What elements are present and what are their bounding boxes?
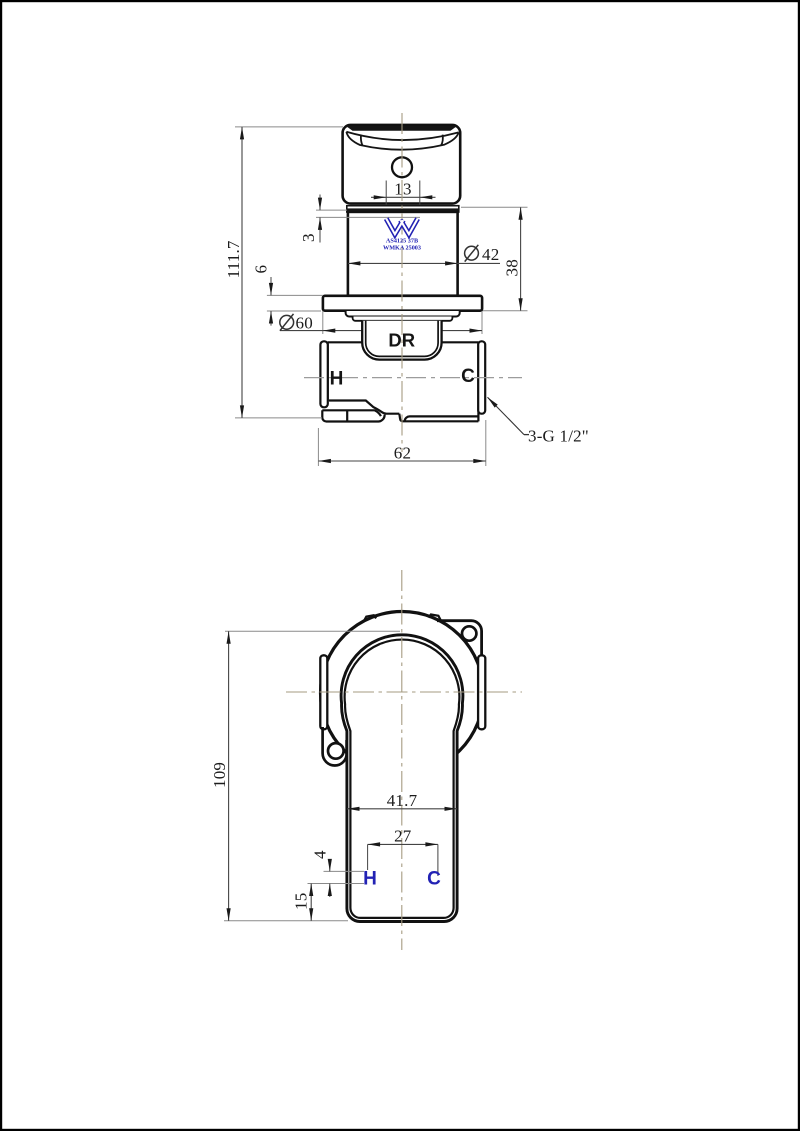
- svg-text:4: 4: [311, 850, 330, 859]
- svg-text:15: 15: [292, 893, 311, 910]
- svg-text:13: 13: [394, 179, 411, 198]
- svg-text:41.7: 41.7: [387, 791, 418, 810]
- svg-text:109: 109: [210, 762, 229, 788]
- svg-text:AS4125 37B: AS4125 37B: [386, 237, 418, 244]
- svg-text:H: H: [330, 369, 344, 390]
- svg-text:111.7: 111.7: [224, 240, 243, 278]
- svg-text:62: 62: [394, 444, 411, 463]
- svg-text:38: 38: [503, 259, 522, 276]
- svg-text:C: C: [461, 366, 475, 387]
- svg-text:H: H: [363, 868, 377, 889]
- svg-text:WMKA 25003: WMKA 25003: [383, 245, 421, 252]
- svg-text:42: 42: [482, 245, 499, 264]
- svg-text:27: 27: [394, 827, 412, 846]
- svg-text:6: 6: [252, 265, 271, 274]
- svg-text:3-G 1/2": 3-G 1/2": [528, 427, 589, 446]
- svg-text:C: C: [427, 868, 441, 889]
- svg-text:60: 60: [296, 314, 313, 333]
- svg-text:3: 3: [299, 233, 318, 242]
